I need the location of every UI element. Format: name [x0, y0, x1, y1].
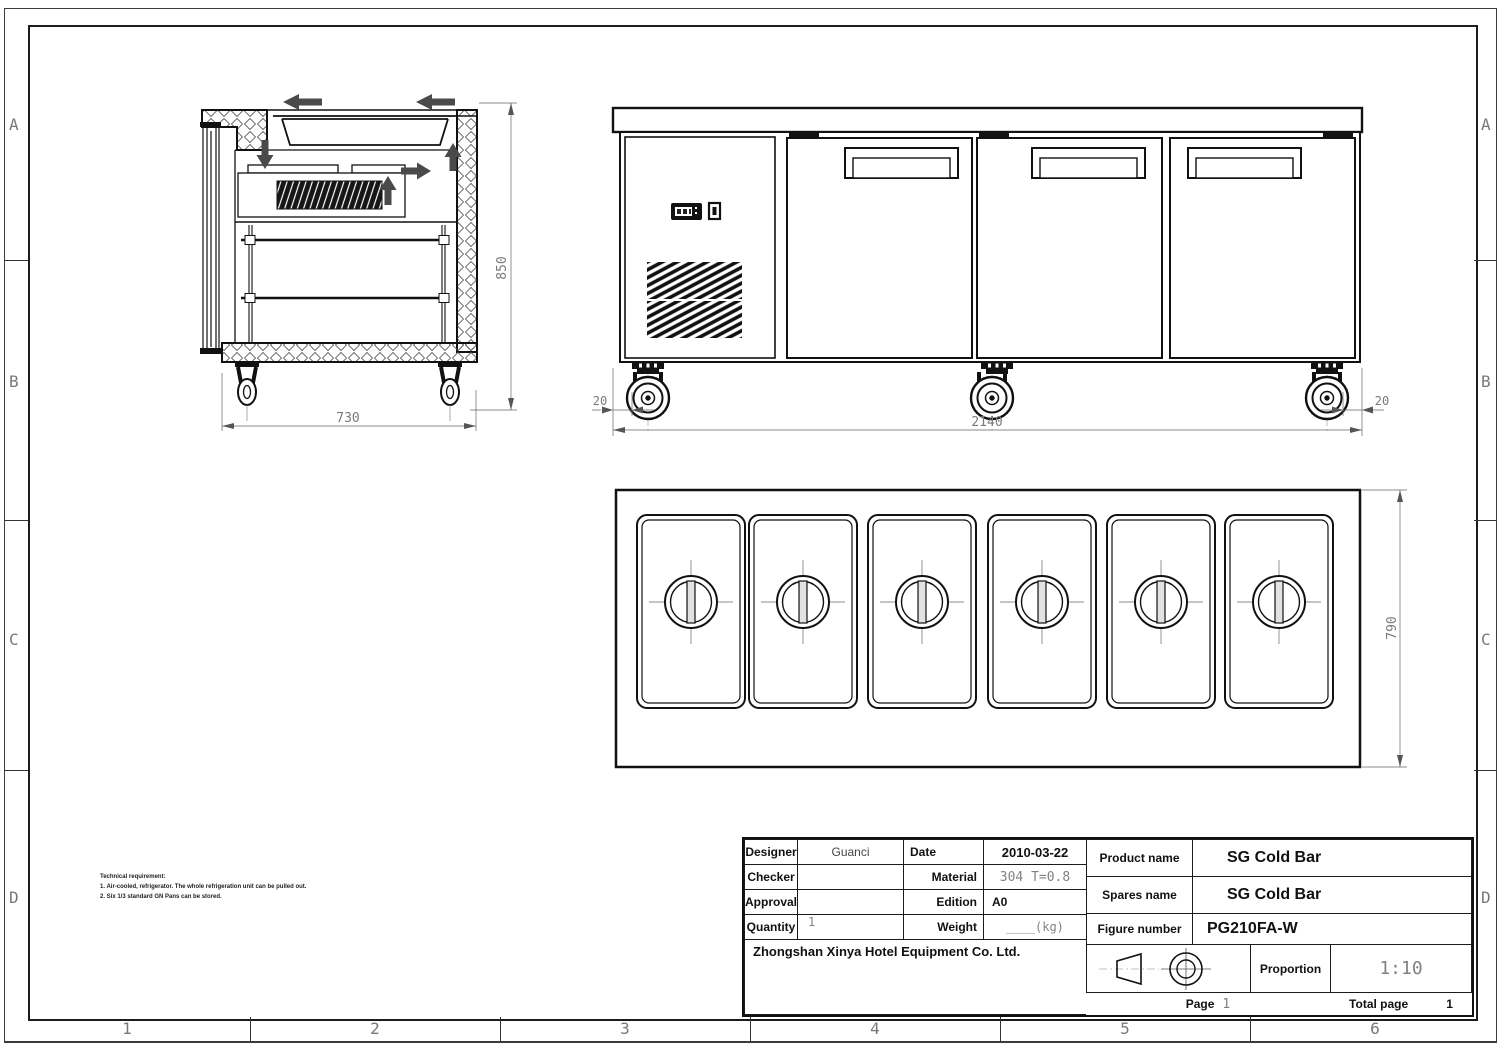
zone-col-label: 1	[97, 1019, 157, 1038]
figure-number-value: PG210FA-W	[1192, 913, 1472, 945]
front-view: 20 20 2140	[560, 100, 1400, 455]
drawing-sheet: A B C D A B C D 1 2 3 4 5 6	[0, 0, 1500, 1045]
dimension-730: 730	[222, 373, 476, 431]
zone-col-label: 5	[1095, 1019, 1155, 1038]
zone-tick	[1474, 770, 1496, 771]
page-label: Page	[1186, 997, 1215, 1011]
zone-row-label-right: B	[1481, 372, 1491, 391]
designer-label: Designer	[744, 839, 798, 865]
zone-row-label-right: C	[1481, 630, 1491, 649]
technical-notes: Technical requirement: 1. Air-cooled, re…	[100, 872, 400, 902]
company-name: Zhongshan Xinya Hotel Equipment Co. Ltd.	[744, 939, 1087, 1015]
door-section	[200, 122, 221, 354]
designer-value: Guanci	[797, 839, 904, 865]
svg-text:20: 20	[593, 394, 607, 408]
projection-symbol	[1086, 944, 1251, 993]
approval-label: Approval	[744, 889, 798, 915]
notes-line: 2. Six 1/3 standard GN Pans can be store…	[100, 892, 400, 902]
evaporator-unit	[235, 150, 457, 343]
zone-row-label-left: C	[9, 630, 19, 649]
zone-row-label-right: A	[1481, 115, 1491, 134]
side-section-view: 730 850	[185, 85, 530, 445]
insulated-shell	[202, 110, 477, 362]
door-handle	[1032, 148, 1145, 178]
doors	[787, 133, 1355, 358]
quantity-value: 1	[797, 914, 904, 940]
zone-tick	[1474, 260, 1496, 261]
material-label: Material	[903, 864, 984, 890]
checker-value	[797, 864, 904, 890]
zone-tick	[4, 520, 28, 521]
proportion-label: Proportion	[1250, 944, 1331, 993]
spares-name-value: SG Cold Bar	[1192, 876, 1472, 914]
checker-label: Checker	[744, 864, 798, 890]
gn-pan	[1107, 515, 1215, 708]
gn-pan-section	[273, 116, 457, 145]
gn-pan	[988, 515, 1096, 708]
zone-row-label-left: A	[9, 115, 19, 134]
edition-value: A0	[983, 889, 1087, 915]
zone-row-label-right: D	[1481, 888, 1491, 907]
approval-value	[797, 889, 904, 915]
page-value: 1	[1222, 997, 1230, 1012]
gn-pan	[868, 515, 976, 708]
edition-label: Edition	[903, 889, 984, 915]
zone-col-label: 2	[345, 1019, 405, 1038]
notes-line: 1. Air-cooled, refrigerator. The whole r…	[100, 882, 400, 892]
power-switch	[709, 203, 720, 219]
total-page-label: Total page	[1349, 997, 1408, 1011]
figure-number-label: Figure number	[1086, 913, 1193, 945]
zone-col-label: 4	[845, 1019, 905, 1038]
product-name-value: SG Cold Bar	[1192, 839, 1472, 877]
temperature-display	[671, 203, 702, 220]
gn-pan	[637, 515, 745, 708]
product-name-label: Product name	[1086, 839, 1193, 877]
zone-row-label-left: B	[9, 372, 19, 391]
gn-pan	[1225, 515, 1333, 708]
title-block: Designer Guanci Date 2010-03-22 Checker …	[742, 837, 1474, 1017]
worktop	[613, 108, 1362, 132]
spares-name-label: Spares name	[1086, 876, 1193, 914]
compressor-panel	[625, 137, 775, 358]
top-plan-view: 790	[605, 480, 1425, 780]
zone-tick	[4, 770, 28, 771]
projection-symbol-icon	[1089, 946, 1249, 992]
date-value: 2010-03-22	[983, 839, 1087, 865]
quantity-label: Quantity	[744, 914, 798, 940]
svg-text:730: 730	[336, 411, 359, 426]
dimension-790: 790	[1362, 490, 1407, 767]
zone-row-label-left: D	[9, 888, 19, 907]
material-value: 304 T=0.8	[983, 864, 1087, 890]
zone-col-label: 6	[1345, 1019, 1405, 1038]
svg-text:850: 850	[495, 256, 510, 279]
proportion-value: 1:10	[1330, 944, 1472, 993]
weight-label: Weight	[903, 914, 984, 940]
door-handle	[1188, 148, 1301, 178]
zone-tick	[1474, 520, 1496, 521]
notes-title: Technical requirement:	[100, 872, 400, 882]
shelves	[241, 225, 449, 343]
gn-pan	[749, 515, 857, 708]
door-handle	[845, 148, 958, 178]
total-page-cell: Total page 1	[1330, 992, 1472, 1015]
weight-value: ____(kg)	[983, 914, 1087, 940]
zone-col-label: 3	[595, 1019, 655, 1038]
zone-tick	[4, 260, 28, 261]
total-page-value: 1	[1446, 997, 1453, 1011]
svg-text:20: 20	[1375, 394, 1389, 408]
date-label: Date	[903, 839, 984, 865]
zone-column-band: 1 2 3 4 5 6	[4, 1017, 1496, 1042]
svg-text:2140: 2140	[971, 415, 1002, 430]
svg-text:790: 790	[1385, 616, 1400, 639]
page-cell: Page 1	[1086, 992, 1330, 1015]
